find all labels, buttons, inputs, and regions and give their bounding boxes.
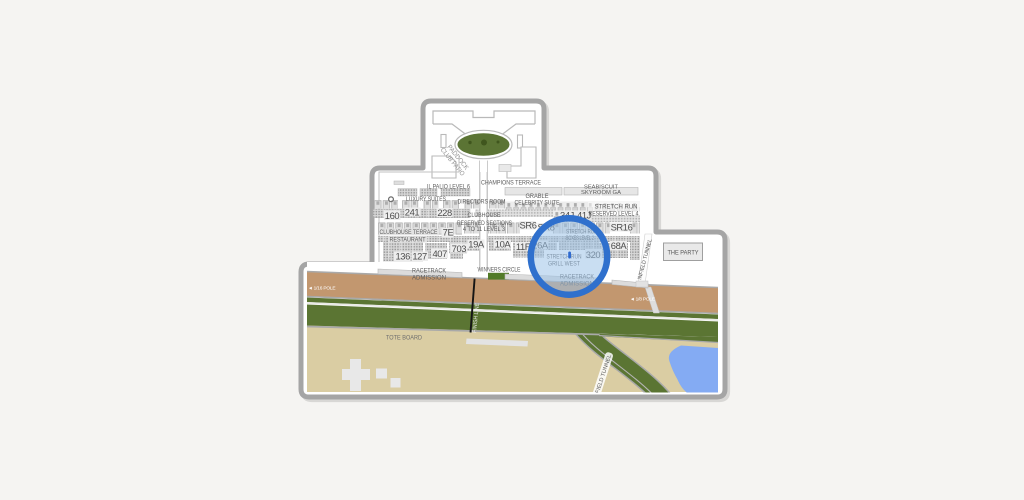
svg-text:241: 241 [405, 207, 420, 218]
svg-text:TOTE BOARD: TOTE BOARD [386, 336, 423, 342]
svg-text:◄ 1/16 POLE: ◄ 1/16 POLE [308, 286, 335, 292]
svg-text:RACETRACK: RACETRACK [412, 268, 447, 275]
svg-text:LUXURY SUITES: LUXURY SUITES [406, 196, 446, 203]
svg-text:228: 228 [437, 207, 452, 218]
svg-text:STRETCH RUN: STRETCH RUN [595, 204, 638, 211]
svg-text:CLUBHOUSE: CLUBHOUSE [468, 212, 501, 219]
svg-text:RESERVED LEVEL 4: RESERVED LEVEL 4 [589, 211, 639, 218]
svg-text:WINNERS CIRCLE: WINNERS CIRCLE [478, 267, 521, 274]
svg-text:127: 127 [412, 251, 427, 262]
svg-text:CHAMPIONS TERRACE: CHAMPIONS TERRACE [481, 180, 541, 187]
svg-text:703: 703 [452, 243, 467, 254]
svg-text:DIRECTORS ROOM: DIRECTORS ROOM [458, 199, 506, 206]
svg-text:THE PARTY: THE PARTY [668, 250, 700, 257]
svg-text:RESTAURANT: RESTAURANT [390, 237, 426, 244]
svg-text:IL PALIO LEVEL 6: IL PALIO LEVEL 6 [427, 184, 470, 191]
svg-text:4 TO 11 LEVEL 3: 4 TO 11 LEVEL 3 [463, 226, 505, 233]
svg-text:136: 136 [395, 251, 410, 262]
svg-text:68A: 68A [611, 240, 628, 251]
svg-text:SKYROOM GA: SKYROOM GA [581, 190, 621, 196]
svg-text:160: 160 [385, 210, 400, 221]
svg-text:10A: 10A [495, 239, 512, 250]
svg-text:7E: 7E [443, 227, 454, 238]
svg-text:CLUBHOUSE TERRACE: CLUBHOUSE TERRACE [380, 229, 438, 236]
svg-text:407: 407 [432, 248, 447, 259]
svg-text:CELEBRITY SUITE: CELEBRITY SUITE [515, 200, 560, 207]
svg-text:SR16: SR16 [611, 222, 633, 233]
svg-text:SR6: SR6 [519, 220, 536, 231]
svg-text:19A: 19A [468, 239, 485, 250]
svg-text:◄ 1/8 POLE: ◄ 1/8 POLE [630, 297, 655, 303]
svg-text:ADMISSION: ADMISSION [412, 275, 446, 282]
